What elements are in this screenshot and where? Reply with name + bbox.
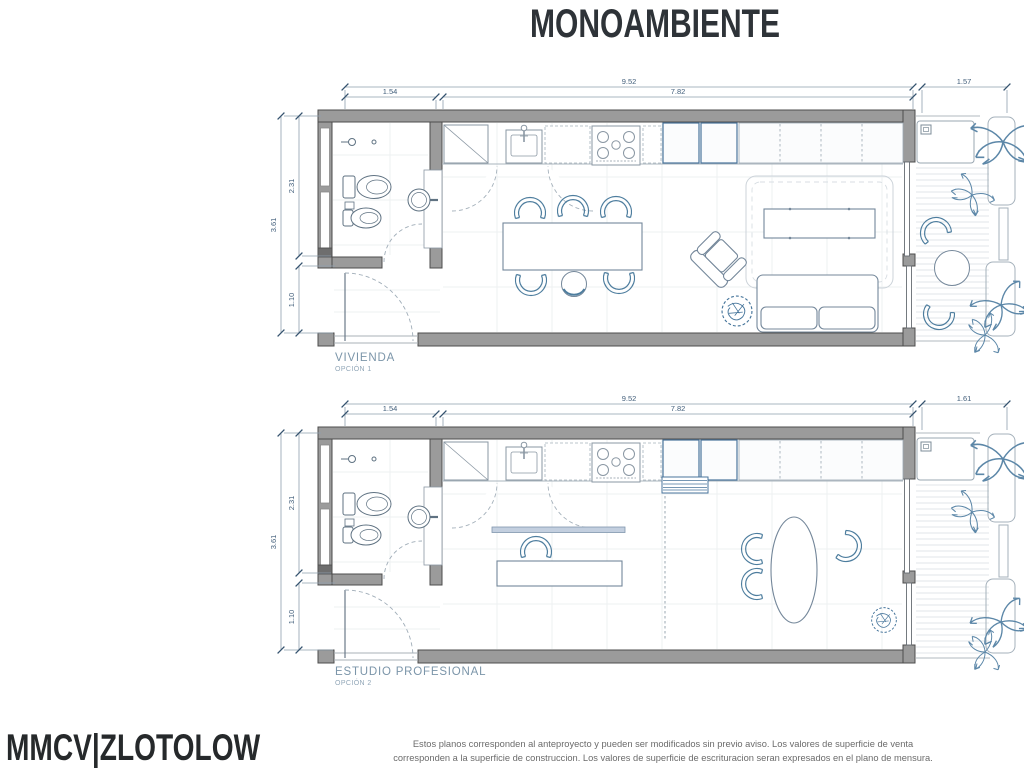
plan-name: VIVIENDA [335, 352, 395, 364]
svg-text:9.52: 9.52 [622, 77, 637, 86]
svg-text:3.61: 3.61 [269, 218, 278, 233]
balcony-table [935, 251, 970, 286]
svg-text:1.61: 1.61 [957, 394, 972, 403]
plan-estudio: 9.52 1.54 7.82 1.61 3.61 2.31 1.10 [269, 394, 1024, 674]
svg-text:9.52: 9.52 [622, 394, 637, 403]
plan-name: ESTUDIO PROFESIONAL [335, 666, 486, 678]
meeting-chair [742, 569, 763, 600]
vivienda-furniture [503, 176, 970, 333]
svg-text:2.31: 2.31 [287, 496, 296, 511]
svg-text:1.57: 1.57 [957, 77, 972, 86]
svg-text:2.31: 2.31 [287, 179, 296, 194]
shelf-unit [662, 477, 708, 493]
plan-option: OPCIÓN 2 [335, 680, 486, 687]
svg-text:7.82: 7.82 [671, 404, 686, 413]
studio-logo: MMCV|ZLOTOLOW [6, 727, 260, 768]
disclaimer-line-2: corresponden a la superficie de construc… [360, 751, 966, 765]
dining-chair [601, 197, 632, 218]
meeting-table [771, 517, 817, 623]
plant-icon [722, 296, 752, 326]
svg-text:1.10: 1.10 [287, 610, 296, 625]
plan-label-estudio: ESTUDIO PROFESIONAL OPCIÓN 2 [335, 666, 486, 687]
dining-chair [516, 275, 547, 296]
desk [497, 561, 622, 586]
dining-chair-round [562, 272, 587, 297]
dining-chair [515, 198, 546, 219]
coffee-table [764, 209, 875, 238]
svg-text:1.54: 1.54 [383, 404, 398, 413]
plan-option: OPCIÓN 1 [335, 366, 395, 373]
armchair [689, 230, 748, 289]
meeting-chair [836, 530, 866, 566]
desk-chair [521, 537, 552, 558]
balcony-chair [920, 304, 956, 333]
floor-plans-drawing: 9.52 1.54 7.82 1.57 3.61 2.31 1.10 [0, 0, 1024, 768]
floor-plan-sheet: MONOAMBIENTE [0, 0, 1024, 768]
svg-text:3.61: 3.61 [269, 535, 278, 550]
disclaimer-text: Estos planos corresponden al anteproyect… [360, 737, 966, 766]
sideboard [492, 527, 625, 533]
dining-chair [604, 273, 635, 294]
svg-text:1.10: 1.10 [287, 293, 296, 308]
sofa [757, 275, 878, 332]
plan-vivienda: 9.52 1.54 7.82 1.57 3.61 2.31 1.10 [269, 77, 1024, 357]
plant-icon [872, 608, 897, 633]
disclaimer-line-1: Estos planos corresponden al anteproyect… [360, 737, 966, 751]
svg-text:1.54: 1.54 [383, 87, 398, 96]
dining-table [503, 223, 642, 270]
plan-label-vivienda: VIVIENDA OPCIÓN 1 [335, 352, 395, 373]
svg-text:7.82: 7.82 [671, 87, 686, 96]
